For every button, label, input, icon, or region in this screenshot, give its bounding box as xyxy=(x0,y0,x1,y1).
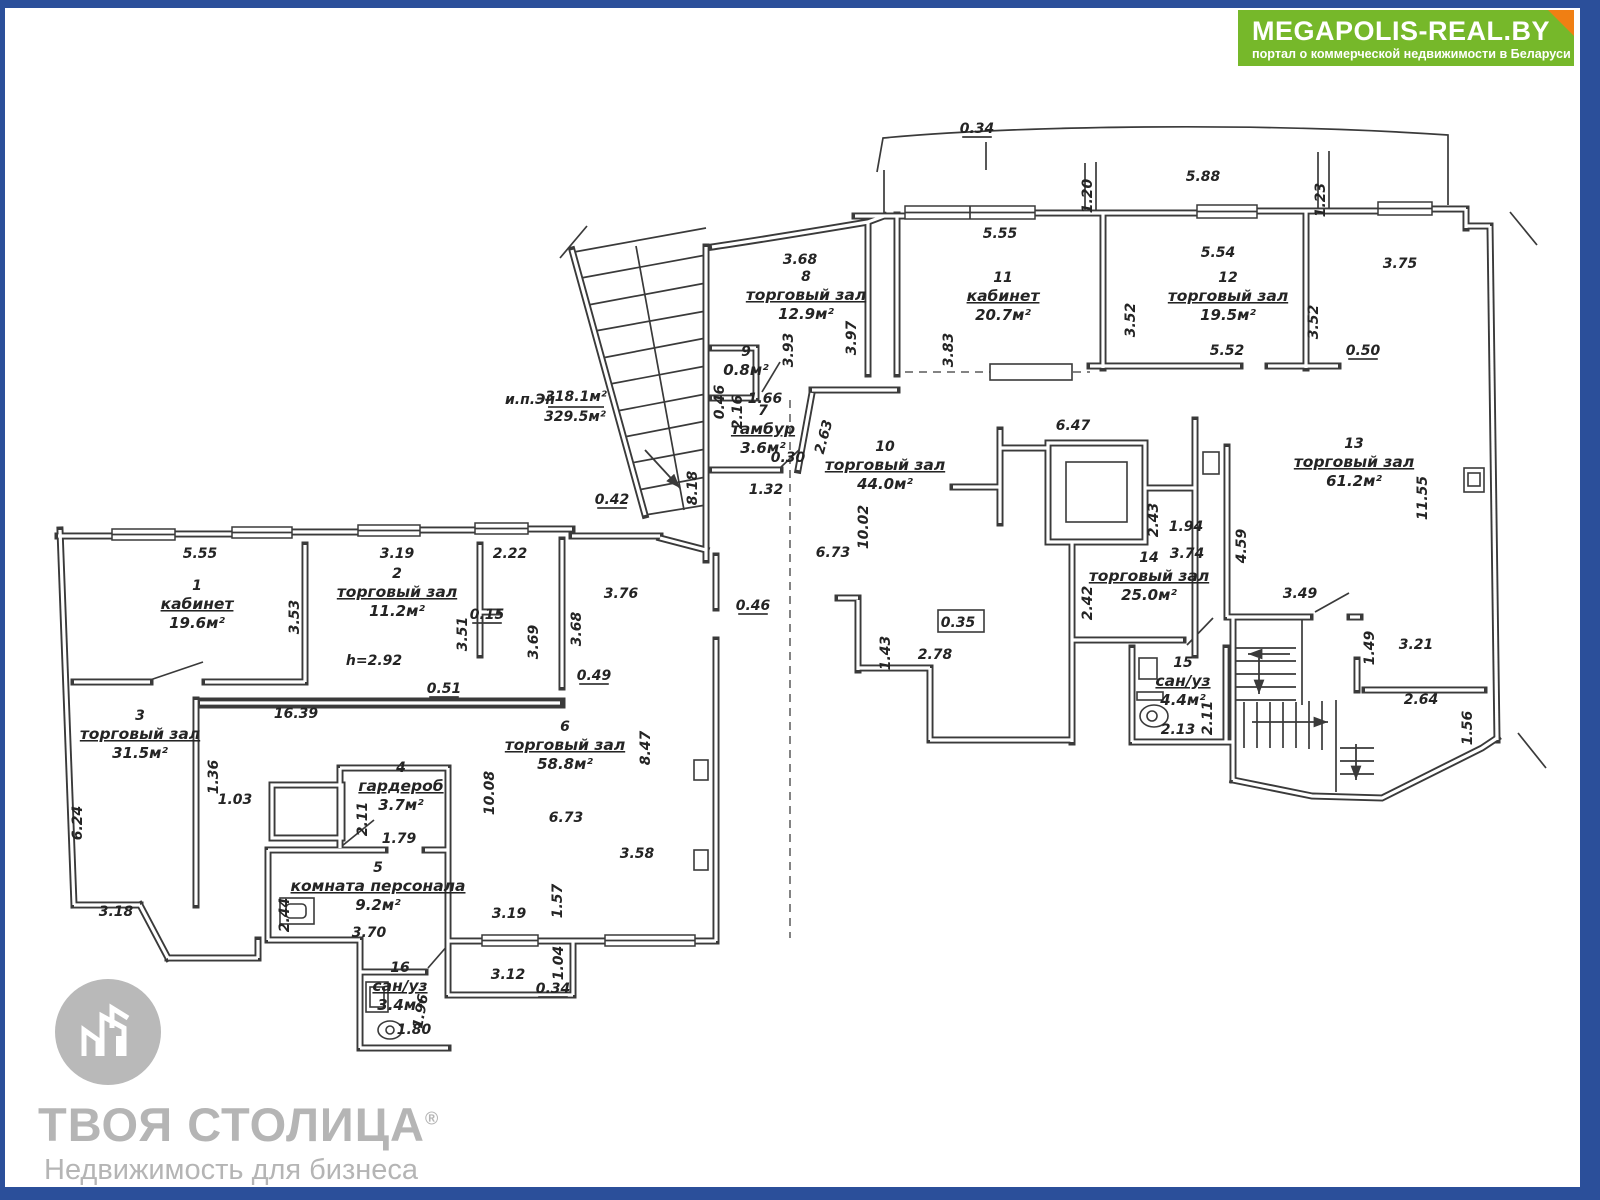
room-name: торговый зал xyxy=(825,456,945,474)
dimension-label: 11.55 xyxy=(1415,476,1431,521)
pilaster-icon xyxy=(694,760,708,780)
total-area-label: 318.1м² xyxy=(545,389,608,405)
dimension-label: 3.83 xyxy=(941,333,957,368)
room-name: торговый зал xyxy=(1168,287,1288,305)
dimension-label: 1.57 xyxy=(550,883,566,918)
dimension-label: 1.20 xyxy=(1080,178,1096,213)
dimension-label: 2.43 xyxy=(1146,503,1162,538)
room-area: 12.9м² xyxy=(778,305,834,323)
room-area: 31.5м² xyxy=(112,744,168,762)
room-number: 11 xyxy=(993,270,1012,286)
dimension-label: 3.19 xyxy=(380,546,415,562)
dimension-label: 0.30 xyxy=(771,450,806,466)
dimension-label: 1.49 xyxy=(1362,630,1378,665)
dimension-label: 1.94 xyxy=(1169,519,1204,535)
banner-subtitle: портал о коммерческой недвижимости в Бел… xyxy=(1252,47,1560,61)
dimension-label: 3.69 xyxy=(526,624,542,659)
dimension-label: 0.15 xyxy=(470,607,505,623)
dimension-label: 0.51 xyxy=(427,681,462,697)
total-area-label: 329.5м² xyxy=(544,409,607,425)
wall-box-icon xyxy=(1203,452,1219,474)
dimension-label: 0.34 xyxy=(960,121,995,137)
dimension-label: 6.73 xyxy=(549,810,584,826)
dimension-label: 5.88 xyxy=(1186,169,1221,185)
room-number: 1 xyxy=(192,578,202,594)
room-area: 44.0м² xyxy=(856,475,913,493)
dimension-label: 5.55 xyxy=(183,546,218,562)
sink-icon xyxy=(1139,658,1157,679)
dimension-label: 3.58 xyxy=(620,846,655,862)
dimension-label: 2.44 xyxy=(277,898,293,933)
dimension-label: 3.52 xyxy=(1123,303,1139,338)
room-area: 61.2м² xyxy=(1326,472,1382,490)
room-number: 10 xyxy=(875,439,895,455)
dimension-label: 3.21 xyxy=(1399,637,1434,653)
room-name: торговый зал xyxy=(1089,567,1209,585)
dimension-label: 2.16 xyxy=(730,394,746,429)
dimension-label: 3.75 xyxy=(1383,256,1418,272)
dimension-label: 1.32 xyxy=(749,482,784,498)
dimension-label: 0.42 xyxy=(595,492,630,508)
site-banner[interactable]: MEGAPOLIS-REAL.BY портал о коммерческой … xyxy=(1238,10,1574,66)
dimension-label: 2.63 xyxy=(812,418,836,456)
room-name: кабинет xyxy=(967,287,1041,305)
room-name: торговый зал xyxy=(80,725,200,743)
room-number: 12 xyxy=(1218,270,1237,286)
dimension-label: 1.79 xyxy=(382,831,417,847)
room-number: 3 xyxy=(135,708,145,724)
room-area: 11.2м² xyxy=(369,602,425,620)
shaft-inner xyxy=(1066,462,1127,522)
room-number: 15 xyxy=(1173,655,1193,671)
dimension-label: 3.93 xyxy=(781,333,797,368)
dimension-label: 3.53 xyxy=(287,600,303,635)
room-number: 8 xyxy=(801,269,811,285)
plan-labels: 1кабинет19.6м²2торговый зал11.2м²3торгов… xyxy=(70,121,1476,1038)
dimension-label: 1.36 xyxy=(206,759,222,794)
dimension-label: 1.23 xyxy=(1313,183,1329,218)
room-area: 19.5м² xyxy=(1200,306,1256,324)
room-name: торговый зал xyxy=(746,286,866,304)
room-name: комната персонала xyxy=(291,877,466,895)
dimension-label: 5.52 xyxy=(1210,343,1245,359)
room-name: сан/уз xyxy=(372,977,427,995)
dimension-label: 1.03 xyxy=(218,792,253,808)
room-name: торговый зал xyxy=(337,583,457,601)
dimension-label: 3.70 xyxy=(352,925,387,941)
dimension-label: 3.12 xyxy=(491,967,526,983)
dimension-label: 3.18 xyxy=(99,904,134,920)
room-name: сан/уз xyxy=(1155,672,1210,690)
banner-fold-icon xyxy=(1548,10,1574,36)
dimension-label: 3.51 xyxy=(455,617,471,652)
dimension-label: 0.50 xyxy=(1346,343,1381,359)
room-area: 9.2м² xyxy=(355,896,401,914)
dimension-label: 1.43 xyxy=(878,636,894,671)
floor-plan: 1кабинет19.6м²2торговый зал11.2м²3торгов… xyxy=(0,0,1600,1200)
dimension-label: 3.19 xyxy=(492,906,527,922)
dimension-label: 2.11 xyxy=(355,802,371,837)
room-area: 58.8м² xyxy=(537,755,593,773)
room-number: 9 xyxy=(741,344,751,360)
dimension-label: 0.46 xyxy=(736,598,771,614)
room-area: 19.6м² xyxy=(169,614,225,632)
room-number: 13 xyxy=(1344,436,1363,452)
dimension-label: 0.46 xyxy=(712,384,728,419)
radiator-icon xyxy=(990,364,1072,380)
dimension-label: 1.66 xyxy=(748,391,783,407)
dimension-label: 0.49 xyxy=(577,668,612,684)
walls xyxy=(58,209,1497,1048)
dimension-label: 16.39 xyxy=(274,706,319,722)
room-area: 25.0м² xyxy=(1121,586,1177,604)
banner-title: MEGAPOLIS-REAL.BY xyxy=(1252,16,1560,46)
dimension-label: 8.18 xyxy=(685,470,701,505)
dimension-label: 1.04 xyxy=(551,946,567,981)
dimension-label: 3.49 xyxy=(1283,586,1318,602)
room-number: 5 xyxy=(373,860,383,876)
dimension-label: 3.68 xyxy=(783,252,818,268)
dimension-label: 6.73 xyxy=(816,545,851,561)
dimension-label: 3.74 xyxy=(1170,546,1205,562)
room-number: 14 xyxy=(1139,550,1158,566)
dimension-label: 6.24 xyxy=(70,806,86,841)
dimension-label: 0.35 xyxy=(941,615,976,631)
dimension-label: 1.56 xyxy=(1460,710,1476,745)
room-area: 3.7м² xyxy=(378,796,424,814)
dimension-label: 4.59 xyxy=(1234,528,1250,564)
room-area: 20.7м² xyxy=(975,306,1031,324)
dimension-label: 2.64 xyxy=(1404,692,1439,708)
dimension-label: 2.13 xyxy=(1161,722,1196,738)
room-number: 16 xyxy=(390,960,410,976)
dimension-label: 3.97 xyxy=(844,320,860,355)
room-name: гардероб xyxy=(358,777,443,795)
room-name: торговый зал xyxy=(1294,453,1414,471)
room-number: 2 xyxy=(392,566,402,582)
room-area: 0.8м² xyxy=(723,361,769,379)
dimension-label: 5.54 xyxy=(1201,245,1236,261)
dimension-label: 2.11 xyxy=(1200,701,1216,736)
dimension-label: 8.47 xyxy=(638,730,654,765)
dimension-label: h=2.92 xyxy=(346,653,402,669)
dimension-label: 6.47 xyxy=(1056,418,1091,434)
dimension-label: 2.78 xyxy=(918,647,953,663)
room-number: 4 xyxy=(395,760,406,776)
dimension-label: 3.68 xyxy=(569,611,585,646)
dimension-label: 3.52 xyxy=(1306,305,1322,340)
dimension-label: 2.22 xyxy=(493,546,528,562)
room-name: торговый зал xyxy=(505,736,625,754)
room-number: 6 xyxy=(560,719,570,735)
dimension-label: 10.02 xyxy=(856,505,872,549)
walls-core xyxy=(58,209,1497,1048)
pilaster-icon xyxy=(694,850,708,870)
dimension-label: 10.08 xyxy=(482,771,498,816)
dimension-label: 2.42 xyxy=(1080,586,1096,621)
dimension-label: 3.76 xyxy=(604,586,639,602)
dimension-label: 5.55 xyxy=(983,226,1018,242)
room-name: кабинет xyxy=(161,595,235,613)
dimension-label: 1.80 xyxy=(397,1022,432,1038)
dimension-label: 0.34 xyxy=(536,981,571,997)
